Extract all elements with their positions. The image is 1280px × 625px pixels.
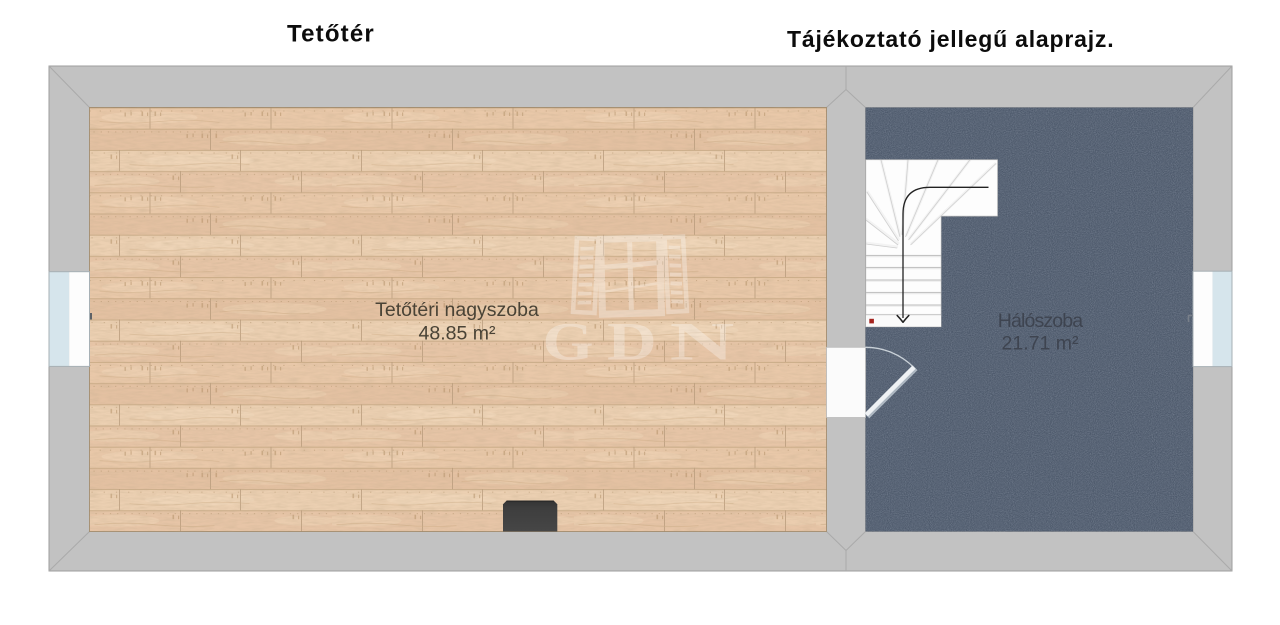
svg-text:21.71 m²: 21.71 m²: [1002, 333, 1079, 355]
svg-text:Tetőtér: Tetőtér: [287, 21, 375, 48]
svg-text:N: N: [670, 312, 735, 372]
svg-text:48.85 m²: 48.85 m²: [419, 323, 496, 345]
svg-text:Hálószoba: Hálószoba: [998, 310, 1083, 332]
svg-text:Tájékoztató jellegű alaprajz.: Tájékoztató jellegű alaprajz.: [787, 26, 1114, 52]
svg-text:D: D: [607, 313, 657, 372]
svg-text:G: G: [543, 312, 594, 371]
svg-text:Tetőtéri nagyszoba: Tetőtéri nagyszoba: [375, 299, 539, 321]
